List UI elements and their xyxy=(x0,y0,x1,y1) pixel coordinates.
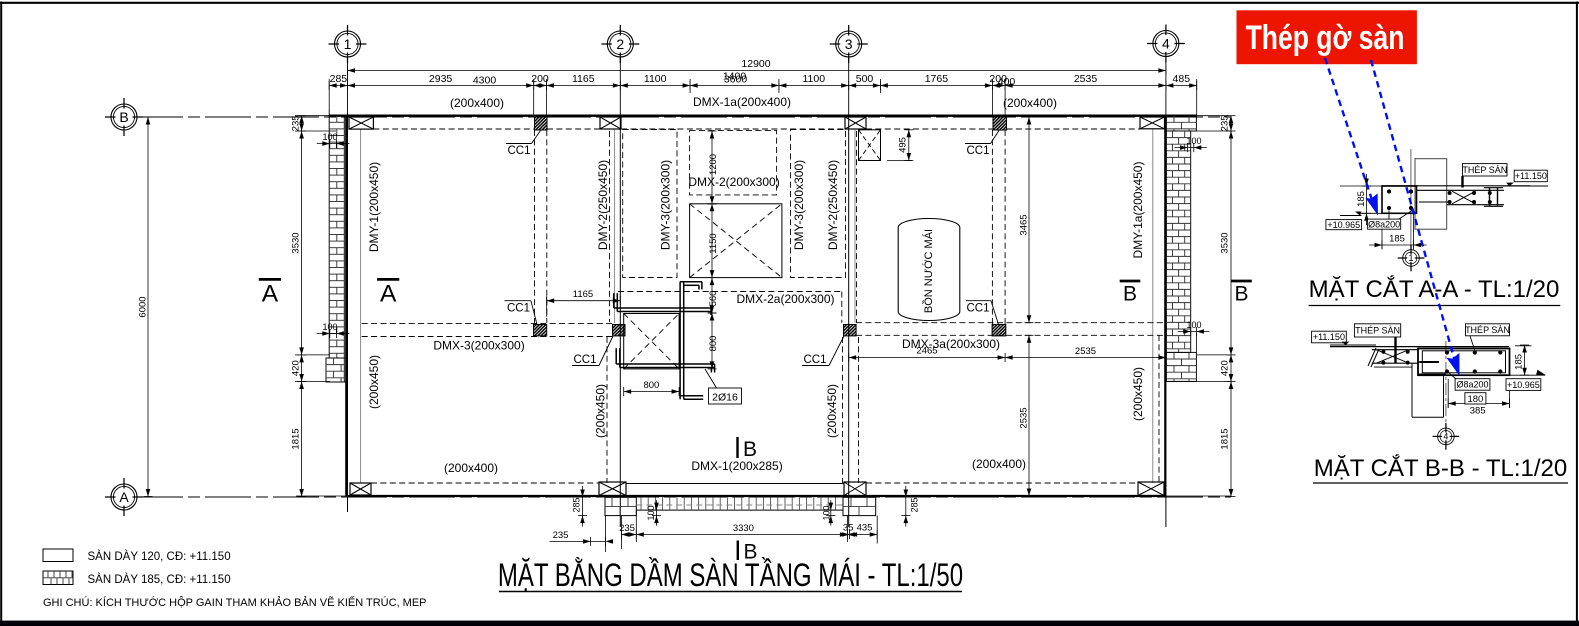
svg-text:100: 100 xyxy=(1186,320,1201,330)
svg-text:B: B xyxy=(119,109,128,125)
svg-text:DMY-2(250x450): DMY-2(250x450) xyxy=(596,160,610,250)
svg-text:+11.150: +11.150 xyxy=(1313,332,1345,342)
svg-text:560: 560 xyxy=(708,291,719,307)
svg-text:185: 185 xyxy=(1389,234,1405,245)
svg-text:3530: 3530 xyxy=(1220,232,1231,253)
svg-text:(200x400): (200x400) xyxy=(1003,96,1057,110)
svg-text:DMX-3(200x300): DMX-3(200x300) xyxy=(433,339,524,353)
svg-text:BỒN NƯỚC MÁI: BỒN NƯỚC MÁI xyxy=(922,229,935,313)
svg-text:(200x400): (200x400) xyxy=(972,457,1026,471)
svg-text:400: 400 xyxy=(998,76,1016,88)
svg-text:100: 100 xyxy=(322,322,337,332)
svg-text:Thép gờ sàn: Thép gờ sàn xyxy=(1246,19,1405,57)
svg-text:(200x450): (200x450) xyxy=(825,384,839,438)
svg-text:800: 800 xyxy=(708,336,719,352)
svg-text:1815: 1815 xyxy=(291,428,302,449)
svg-text:THÉP SÀN: THÉP SÀN xyxy=(1462,165,1507,175)
svg-text:DMX-3a(200x300): DMX-3a(200x300) xyxy=(902,337,1000,351)
svg-text:100: 100 xyxy=(646,505,656,520)
svg-text:3330: 3330 xyxy=(733,523,754,534)
svg-text:435: 435 xyxy=(857,523,873,534)
svg-text:CC1: CC1 xyxy=(966,302,989,314)
svg-text:420: 420 xyxy=(291,360,302,376)
svg-text:100: 100 xyxy=(1186,136,1201,146)
svg-text:1100: 1100 xyxy=(803,73,826,85)
svg-text:1815: 1815 xyxy=(1220,428,1231,449)
svg-text:+11.150: +11.150 xyxy=(1515,171,1547,181)
svg-text:4: 4 xyxy=(1443,432,1448,442)
svg-text:1: 1 xyxy=(344,36,352,52)
svg-text:1100: 1100 xyxy=(644,73,667,85)
svg-text:6000: 6000 xyxy=(138,296,149,317)
svg-text:(200x450): (200x450) xyxy=(594,384,608,438)
svg-text:(200x400): (200x400) xyxy=(450,96,504,110)
svg-text:MẶT BẰNG DẦM SÀN TẦNG MÁI - TL: MẶT BẰNG DẦM SÀN TẦNG MÁI - TL:1/50 xyxy=(498,557,963,593)
svg-text:+10.965: +10.965 xyxy=(1327,220,1360,230)
svg-text:3530: 3530 xyxy=(291,232,302,253)
svg-text:1165: 1165 xyxy=(572,73,595,85)
svg-text:235: 235 xyxy=(291,115,302,131)
svg-text:DMY-1(200x450): DMY-1(200x450) xyxy=(367,162,381,252)
svg-text:420: 420 xyxy=(1220,360,1231,376)
svg-text:CC1: CC1 xyxy=(966,145,989,157)
svg-text:1200: 1200 xyxy=(708,154,719,175)
svg-text:3: 3 xyxy=(845,36,853,52)
svg-text:THÉP SÀN: THÉP SÀN xyxy=(1465,325,1510,335)
svg-text:THÉP SÀN: THÉP SÀN xyxy=(1355,326,1400,336)
svg-text:DMY-2(250x450): DMY-2(250x450) xyxy=(826,160,840,250)
svg-text:4: 4 xyxy=(1162,36,1170,52)
svg-text:SÀN DÀY 185, CĐ: +11.150: SÀN DÀY 185, CĐ: +11.150 xyxy=(88,573,231,586)
svg-text:485: 485 xyxy=(1173,73,1191,85)
svg-text:A: A xyxy=(262,280,279,307)
svg-text:MẶT CẮT B-B - TL:1/20: MẶT CẮT B-B - TL:1/20 xyxy=(1314,454,1567,482)
svg-text:285: 285 xyxy=(910,497,920,512)
svg-text:CC1: CC1 xyxy=(507,145,530,157)
svg-text:+10.965: +10.965 xyxy=(1507,380,1540,390)
svg-text:2: 2 xyxy=(616,36,624,52)
svg-text:B: B xyxy=(1234,283,1248,306)
svg-text:CC1: CC1 xyxy=(803,354,826,366)
svg-text:DMY-3(200x300): DMY-3(200x300) xyxy=(659,160,673,250)
svg-text:235: 235 xyxy=(553,530,569,541)
svg-text:285: 285 xyxy=(330,73,348,85)
svg-text:B: B xyxy=(1123,283,1137,306)
svg-text:3465: 3465 xyxy=(1019,214,1030,235)
svg-text:MẶT CẮT A-A - TL:1/20: MẶT CẮT A-A - TL:1/20 xyxy=(1309,275,1560,303)
svg-text:Ø8a200: Ø8a200 xyxy=(1368,219,1400,229)
svg-text:1165: 1165 xyxy=(573,289,593,300)
svg-text:B: B xyxy=(743,438,757,461)
svg-text:Ø8a200: Ø8a200 xyxy=(1456,380,1488,390)
svg-text:DMX-2(200x300): DMX-2(200x300) xyxy=(688,175,779,189)
svg-text:2Ø16: 2Ø16 xyxy=(712,392,738,404)
svg-text:DMX-1(200x285): DMX-1(200x285) xyxy=(691,459,782,473)
svg-text:800: 800 xyxy=(643,380,659,391)
svg-text:A: A xyxy=(380,280,397,307)
svg-text:2935: 2935 xyxy=(429,73,453,85)
svg-text:1150: 1150 xyxy=(708,233,719,253)
svg-text:385: 385 xyxy=(1470,406,1486,417)
svg-text:185: 185 xyxy=(1356,191,1367,207)
svg-text:DMX-1a(200x400): DMX-1a(200x400) xyxy=(693,95,791,109)
svg-text:(200x400): (200x400) xyxy=(444,461,498,475)
svg-text:2535: 2535 xyxy=(1074,73,1098,85)
svg-text:12900: 12900 xyxy=(741,58,770,70)
svg-text:285: 285 xyxy=(572,497,582,512)
svg-text:1: 1 xyxy=(1408,253,1413,263)
svg-text:CC1: CC1 xyxy=(573,354,596,366)
svg-text:35: 35 xyxy=(843,523,854,534)
svg-text:GHI CHÚ: KÍCH THƯỚC HỘP GAIN T: GHI CHÚ: KÍCH THƯỚC HỘP GAIN THAM KHẢO B… xyxy=(43,596,427,609)
svg-text:495: 495 xyxy=(898,137,909,153)
svg-text:2535: 2535 xyxy=(1019,407,1030,428)
svg-text:(200x450): (200x450) xyxy=(367,355,381,409)
svg-text:SÀN DÀY 120, CĐ: +11.150: SÀN DÀY 120, CĐ: +11.150 xyxy=(88,550,231,563)
svg-text:180: 180 xyxy=(1467,394,1483,405)
svg-text:235: 235 xyxy=(1220,115,1231,131)
svg-text:DMY-3(200x300): DMY-3(200x300) xyxy=(792,160,806,250)
svg-text:DMX-2a(200x300): DMX-2a(200x300) xyxy=(736,292,834,306)
svg-text:2535: 2535 xyxy=(1075,346,1096,357)
svg-text:DMY-1a(200x450): DMY-1a(200x450) xyxy=(1131,162,1145,259)
svg-text:100: 100 xyxy=(822,505,832,520)
svg-text:100: 100 xyxy=(322,132,337,142)
svg-text:CC1: CC1 xyxy=(507,302,530,314)
svg-text:4300: 4300 xyxy=(473,75,497,87)
svg-text:3600: 3600 xyxy=(724,74,748,86)
svg-text:(200x450): (200x450) xyxy=(1131,367,1145,421)
svg-text:185: 185 xyxy=(1514,354,1525,370)
svg-text:A: A xyxy=(119,489,129,505)
svg-text:500: 500 xyxy=(856,73,874,85)
svg-text:1765: 1765 xyxy=(925,73,949,85)
